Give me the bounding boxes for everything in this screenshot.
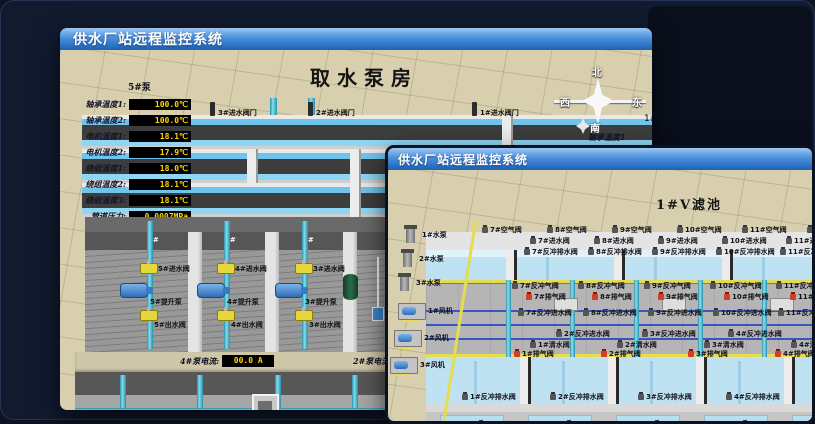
telemetry-row: 轴承温度2: 100.0℃ [68, 112, 200, 128]
valve-label: 1#反冲排水阀 [470, 392, 516, 402]
valve-label: 9#反冲排水阀 [660, 247, 706, 257]
valve-label: 10#反冲排水阀 [724, 247, 775, 257]
backwash-inlet-valve[interactable]: 7#反冲进水阀 [518, 308, 583, 318]
backwash-drain-valve[interactable]: 7#反冲排水阀 [524, 247, 588, 257]
backwash-air-valve[interactable]: 7#反冲气阀 [512, 281, 578, 291]
pump-label: 2#水泵 [419, 254, 444, 264]
valve-icon[interactable] [648, 310, 654, 316]
valve-label: 4#反冲进水阀 [736, 329, 782, 339]
bay-pipe-icon [302, 221, 308, 349]
valve-icon[interactable] [658, 238, 664, 244]
backwash-pump[interactable]: 2#水泵 [389, 250, 484, 274]
backwash-drain-valve[interactable]: 3#反冲排水阀 [638, 392, 726, 402]
exhaust-valve[interactable]: 8#排气阀 [592, 292, 658, 302]
telemetry-label: 电机温度1: [68, 131, 126, 142]
pump-label: 1#水泵 [422, 230, 447, 240]
valve-label: 7#反冲进水阀 [526, 308, 572, 318]
valve-icon[interactable] [644, 283, 650, 289]
inlet-valve[interactable]: 3#进水阀 [654, 420, 742, 424]
valve-label: 2#排气阀 [609, 349, 641, 359]
valve-label: 8#反冲排水阀 [596, 247, 642, 257]
valve-icon[interactable] [588, 249, 594, 255]
valve-label: 2#反冲进水阀 [564, 329, 610, 339]
blower[interactable]: 2#风机 [388, 327, 484, 354]
valve-label: 11#空气阀 [750, 225, 787, 235]
blower-pipe-icon [402, 320, 418, 322]
room-title-pump-house: 取水泵房 [310, 62, 418, 91]
backwash-drain-valve[interactable]: 11#反冲排水阀 [780, 247, 815, 257]
pump-bay-4: 4# 4#进水阀 4#提升泵 4#出水阀 [189, 217, 265, 352]
valve-icon[interactable] [716, 249, 722, 255]
exhaust-valve-icon[interactable] [775, 351, 781, 357]
lift-pump-icon[interactable] [275, 283, 303, 298]
blower-icon[interactable] [398, 303, 426, 320]
inlet-valve-label: 4#进水阀 [235, 264, 267, 274]
exhaust-valve-icon[interactable] [592, 294, 598, 300]
inlet-valve[interactable]: 7#进水阀 [530, 236, 594, 246]
valve-icon[interactable] [578, 283, 584, 289]
valve-label: 7#反冲气阀 [520, 281, 559, 291]
air-valve[interactable]: 11#空气阀 [742, 225, 807, 235]
valve-label: 2#进水阀 [574, 420, 606, 424]
valve-icon[interactable] [652, 249, 658, 255]
telemetry-row: 绕组温度3: 18.1℃ [68, 192, 200, 208]
valve-icon[interactable] [722, 238, 728, 244]
exhaust-valve[interactable]: 7#排气阀 [526, 292, 592, 302]
compass-west: 西 [560, 94, 570, 109]
lift-pump-icon[interactable] [197, 283, 225, 298]
backwash-air-valve[interactable]: 9#反冲气阀 [644, 281, 710, 291]
intake-valve[interactable]: 1#进水阀门 [472, 102, 519, 118]
air-valve[interactable]: 7#空气阀 [482, 225, 547, 235]
inlet-valve-icon[interactable] [217, 263, 235, 274]
flowmeter-cabinet-icon[interactable] [252, 394, 279, 410]
exhaust-valve[interactable]: 2#排气阀 [601, 349, 688, 359]
exhaust-valve-icon[interactable] [526, 294, 532, 300]
inlet-valve[interactable]: 1#进水阀 [478, 420, 566, 424]
valve-label: 7#进水阀 [538, 236, 570, 246]
backwash-drain-valve[interactable]: 9#反冲排水阀 [652, 247, 716, 257]
air-valve[interactable]: 10#空气阀 [677, 225, 742, 235]
outlet-valve-label: 4#出水阀 [231, 320, 263, 330]
valve-label: 8#排气阀 [600, 292, 632, 302]
valve-icon[interactable] [594, 238, 600, 244]
inlet-valve[interactable]: 2#进水阀 [566, 420, 654, 424]
backwash-inlet-valve[interactable]: 10#反冲进水阀 [713, 308, 778, 318]
blower[interactable]: 3#风机 [385, 354, 484, 381]
valve-label: 10#反冲气阀 [718, 281, 762, 291]
valve-label: 8#空气阀 [555, 225, 587, 235]
valve-label: 7#空气阀 [490, 225, 522, 235]
telemetry-row: 轴承温度1: 100.0℃ [68, 96, 200, 112]
lift-pump-label: 3#提升泵 [305, 297, 337, 307]
valve-label: 10#反冲进水阀 [721, 308, 772, 318]
blower-pipe-icon [394, 374, 410, 376]
valve-icon[interactable] [583, 310, 589, 316]
backwash-air-valve[interactable]: 11#反冲气阀 [776, 281, 815, 291]
valve-label: 9#反冲气阀 [652, 281, 691, 291]
valve-icon[interactable] [728, 331, 734, 337]
backwash-air-valve[interactable]: 10#反冲气阀 [710, 281, 776, 291]
valve-label: 1#排气阀 [522, 349, 554, 359]
valve-icon[interactable] [530, 238, 536, 244]
intake-valve-label: 3#进水阀门 [218, 108, 257, 118]
inlet-valve-icon[interactable] [295, 263, 313, 274]
room-title-filter: 1#V滤池 [656, 194, 722, 213]
exhaust-valve[interactable]: 3#排气阀 [688, 349, 775, 359]
telemetry-value: 100.0℃ [129, 115, 191, 126]
valve-icon[interactable] [778, 310, 784, 316]
telemetry-row: 电机温度2: 17.9℃ [68, 144, 200, 160]
valve-icon[interactable] [524, 249, 530, 255]
valve-label: 11#排气阀 [798, 292, 815, 302]
blower-icon[interactable] [390, 357, 418, 374]
pump4-current-label: 4#泵电流: [180, 356, 219, 367]
telemetry-row: 绕组温度1: 18.0℃ [68, 160, 200, 176]
inlet-valve[interactable]: 4#进水阀 [742, 420, 815, 424]
valve-icon[interactable] [807, 227, 813, 233]
air-valve[interactable]: 8#空气阀 [547, 225, 612, 235]
backwash-drain-valve[interactable]: 1#反冲排水阀 [462, 392, 550, 402]
telemetry-value: 18.0℃ [129, 163, 191, 174]
telemetry-value: 100.0℃ [129, 99, 191, 110]
filter-window-title: 供水厂站远程监控系统 [388, 151, 528, 168]
valve-label: 11#反冲气阀 [784, 281, 815, 291]
valve-icon[interactable] [612, 227, 618, 233]
cell-divider [506, 250, 517, 280]
valve-icon[interactable] [710, 283, 716, 289]
riser-pipe-icon [197, 375, 203, 410]
exhaust-valve[interactable]: 10#排气阀 [724, 292, 790, 302]
air-valve[interactable]: 9#空气阀 [612, 225, 677, 235]
pump5-panel-header: 5#泵 [128, 80, 200, 93]
telemetry-value: 18.1℃ [129, 179, 191, 190]
valve-icon[interactable] [512, 283, 518, 289]
valve-icon[interactable] [550, 394, 556, 400]
valve-icon[interactable] [742, 227, 748, 233]
backwash-inlet-valve[interactable]: 9#反冲进水阀 [648, 308, 713, 318]
valve-label: 2#反冲排水阀 [558, 392, 604, 402]
pump-icon[interactable] [400, 276, 409, 291]
valve-label: 10#空气阀 [685, 225, 722, 235]
inlet-valve-label: 3#进水阀 [313, 264, 345, 274]
exhaust-valve[interactable]: 9#排气阀 [658, 292, 724, 302]
valve-label: 4#排气阀 [783, 349, 815, 359]
valve-label: 9#空气阀 [620, 225, 652, 235]
valve-icon[interactable] [713, 310, 719, 316]
exhaust-valve-icon[interactable] [790, 294, 796, 300]
valve-icon[interactable] [547, 227, 553, 233]
backwash-inlet-valve[interactable]: 11#反冲进水阀 [778, 308, 815, 318]
valve-icon[interactable] [617, 342, 623, 348]
valve-label: 4#反冲排水阀 [734, 392, 780, 402]
valve-label: 11#反冲进水阀 [786, 308, 815, 318]
valve-icon[interactable] [704, 342, 710, 348]
intake-valve[interactable]: 2#进水阀门 [308, 102, 355, 118]
valve-label: 9#反冲进水阀 [656, 308, 702, 318]
valve-label: 10#排气阀 [732, 292, 769, 302]
compass-east: 东 [632, 94, 642, 109]
pump-bay-3: 3# 3#进水阀 3#提升泵 3#出水阀 [267, 217, 343, 352]
valve-icon[interactable] [530, 342, 536, 348]
pump4-current-value: 00.0 A [222, 355, 274, 367]
pump-icon[interactable] [403, 252, 412, 267]
level-gauge-icon [377, 257, 379, 309]
backwash-inlet-valve[interactable]: 8#反冲进水阀 [583, 308, 648, 318]
pump1-panel-header: 1# [644, 114, 652, 124]
backwash-drain-valve[interactable]: 8#反冲排水阀 [588, 247, 652, 257]
inlet-flume [426, 412, 812, 424]
outlet-valve-label: 3#出水阀 [309, 320, 341, 330]
filter-pool-graphic: 1#V滤池 [388, 192, 812, 421]
valve-icon[interactable] [518, 310, 524, 316]
valve-icon[interactable] [556, 331, 562, 337]
deck-riser-pipe-icon [506, 280, 511, 357]
pump-window-title: 供水厂站远程监控系统 [60, 29, 223, 49]
blower-label: 3#风机 [420, 360, 445, 370]
backwash-pump[interactable]: 1#水泵 [392, 226, 484, 250]
valve-label: 3#进水阀 [662, 420, 694, 424]
pump4-current-readout: 4#泵电流: 00.0 A [180, 355, 274, 367]
pump-icon[interactable] [406, 228, 415, 243]
valve-label: 11#反冲排水阀 [788, 247, 815, 257]
lift-pump-icon[interactable] [120, 283, 148, 298]
valve-icon[interactable] [638, 394, 644, 400]
blower-label: 2#风机 [424, 333, 449, 343]
telemetry-value: 17.9℃ [129, 147, 191, 158]
exhaust-valve-icon[interactable] [514, 351, 520, 357]
backwash-inlet-valve[interactable]: 3#反冲进水阀 [642, 329, 728, 339]
telemetry-value: 18.1℃ [129, 195, 191, 206]
telemetry-row: 电机温度1: 18.1℃ [68, 128, 200, 144]
exhaust-valve-icon[interactable] [688, 351, 694, 357]
gate-valve-icon[interactable] [210, 102, 215, 116]
inlet-valve[interactable]: 9#进水阀 [658, 236, 722, 246]
telemetry-label: 轴承温度2: [68, 115, 126, 126]
valve-label: 1#进水阀 [486, 420, 518, 424]
telemetry-label: 轴承温度1: [68, 99, 126, 110]
valve-label: 10#进水阀 [730, 236, 767, 246]
outlet-valve-label: 5#出水阀 [154, 320, 186, 330]
filter-window: 供水厂站远程监控系统 1#V滤池 [385, 145, 815, 424]
backwash-pump[interactable]: 3#水泵 [386, 274, 484, 298]
compass-north: 北 [592, 64, 602, 79]
exhaust-valve-icon[interactable] [724, 294, 730, 300]
valve-icon[interactable] [462, 394, 468, 400]
bay-pipe-icon [224, 221, 230, 349]
telemetry-value: 18.1℃ [129, 131, 191, 142]
bay-pipe-icon [147, 221, 153, 349]
backwash-drain-valve[interactable]: 2#反冲排水阀 [550, 392, 638, 402]
inlet-valve-icon[interactable] [140, 263, 158, 274]
telemetry-label: 绕组温度1: [68, 163, 126, 174]
exhaust-valve[interactable]: 4#排气阀 [775, 349, 815, 359]
filter-window-body: 1#V滤池 [388, 170, 812, 421]
gate-valve-icon[interactable] [308, 102, 313, 116]
pump5-data-panel: 5#泵 轴承温度1: 100.0℃ 轴承温度2: 100.0℃ 电机温度1: 1… [68, 80, 200, 240]
valve-label: 8#反冲进水阀 [591, 308, 637, 318]
level-gauge-box-icon [372, 307, 384, 321]
exhaust-valve-icon[interactable] [658, 294, 664, 300]
intake-valve-label: 2#进水阀门 [316, 108, 355, 118]
telemetry-label: 电机温度2: [68, 147, 126, 158]
blower-icon[interactable] [394, 330, 422, 347]
valve-icon[interactable] [677, 227, 683, 233]
valve-icon[interactable] [786, 238, 792, 244]
compass-star-icon [582, 78, 614, 124]
exhaust-valve[interactable]: 1#排气阀 [514, 349, 601, 359]
valve-label: 9#进水阀 [666, 236, 698, 246]
valve-label: 3#反冲排水阀 [646, 392, 692, 402]
valve-icon[interactable] [726, 394, 732, 400]
bottom-wall [426, 404, 812, 412]
inlet-valve[interactable]: 10#进水阀 [722, 236, 786, 246]
pump-label: 3#水泵 [416, 278, 441, 288]
valve-label: 4#进水阀 [750, 420, 782, 424]
intake-valve-label: 1#进水阀门 [480, 108, 519, 118]
pump-bay-5: 5# 5#进水阀 5#提升泵 5#出水阀 [112, 217, 188, 352]
air-valve[interactable]: 12#空气阀 [807, 225, 815, 235]
backwash-drain-valve[interactable]: 10#反冲排水阀 [716, 247, 780, 257]
channel-gate-divider [247, 149, 258, 183]
valve-label: 8#反冲气阀 [586, 281, 625, 291]
blower-label: 1#风机 [428, 306, 453, 316]
exhaust-valve-icon[interactable] [601, 351, 607, 357]
valve-icon[interactable] [776, 283, 782, 289]
intake-valve[interactable]: 3#进水阀门 [210, 102, 257, 118]
backwash-drain-valve[interactable]: 4#反冲排水阀 [726, 392, 814, 402]
valve-label: 3#排气阀 [696, 349, 728, 359]
valve-label: 7#反冲排水阀 [532, 247, 578, 257]
compass: 北 西 南 东 [552, 68, 652, 138]
telemetry-label: 绕组温度2: [68, 179, 126, 190]
inlet-valve[interactable]: 11#进水阀 [786, 236, 815, 246]
inlet-valve-label: 5#进水阀 [158, 264, 190, 274]
valve-label: 9#排气阀 [666, 292, 698, 302]
riser-pipe-icon [352, 375, 358, 410]
inlet-valve[interactable]: 8#进水阀 [594, 236, 658, 246]
oil-drum-icon [343, 274, 358, 300]
backwash-inlet-valve[interactable]: 4#反冲进水阀 [728, 329, 814, 339]
valve-label: 3#反冲进水阀 [650, 329, 696, 339]
valve-icon[interactable] [791, 342, 797, 348]
lift-pump-label: 4#提升泵 [227, 297, 259, 307]
channel-gate-divider [350, 149, 361, 217]
valve-label: 11#进水阀 [794, 236, 815, 246]
valve-label: 8#进水阀 [602, 236, 634, 246]
exhaust-valve[interactable]: 11#排气阀 [790, 292, 815, 302]
backwash-air-valve[interactable]: 8#反冲气阀 [578, 281, 644, 291]
telemetry-label: 绕组温度3: [68, 195, 126, 206]
filter-window-titlebar[interactable]: 供水厂站远程监控系统 [388, 148, 812, 170]
gate-valve-icon[interactable] [472, 102, 477, 116]
riser-pipe-icon [120, 375, 126, 410]
blower-pipe-icon [398, 347, 414, 349]
backwash-inlet-valve[interactable]: 2#反冲进水阀 [556, 329, 642, 339]
valve-icon[interactable] [780, 249, 786, 255]
lift-pump-label: 5#提升泵 [150, 297, 182, 307]
blower[interactable]: 1#风机 [392, 300, 484, 327]
valve-icon[interactable] [642, 331, 648, 337]
telemetry-row: 绕组温度2: 18.1℃ [68, 176, 200, 192]
valve-label: 7#排气阀 [534, 292, 566, 302]
pump-window-titlebar[interactable]: 供水厂站远程监控系统 [60, 28, 652, 50]
